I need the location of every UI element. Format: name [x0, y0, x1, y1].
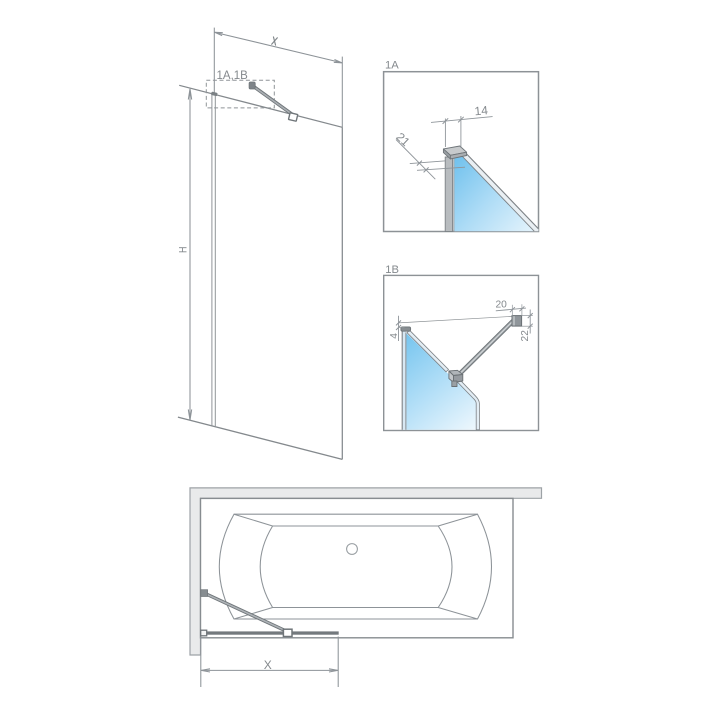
svg-text:1A,1B: 1A,1B [217, 70, 249, 82]
svg-text:H: H [178, 247, 190, 254]
svg-text:22: 22 [520, 330, 531, 342]
svg-text:20: 20 [496, 300, 508, 311]
svg-text:X: X [264, 658, 272, 672]
svg-text:1B: 1B [385, 264, 399, 276]
svg-text:1A: 1A [385, 60, 399, 72]
svg-text:4: 4 [389, 333, 400, 339]
svg-text:14: 14 [474, 103, 489, 118]
